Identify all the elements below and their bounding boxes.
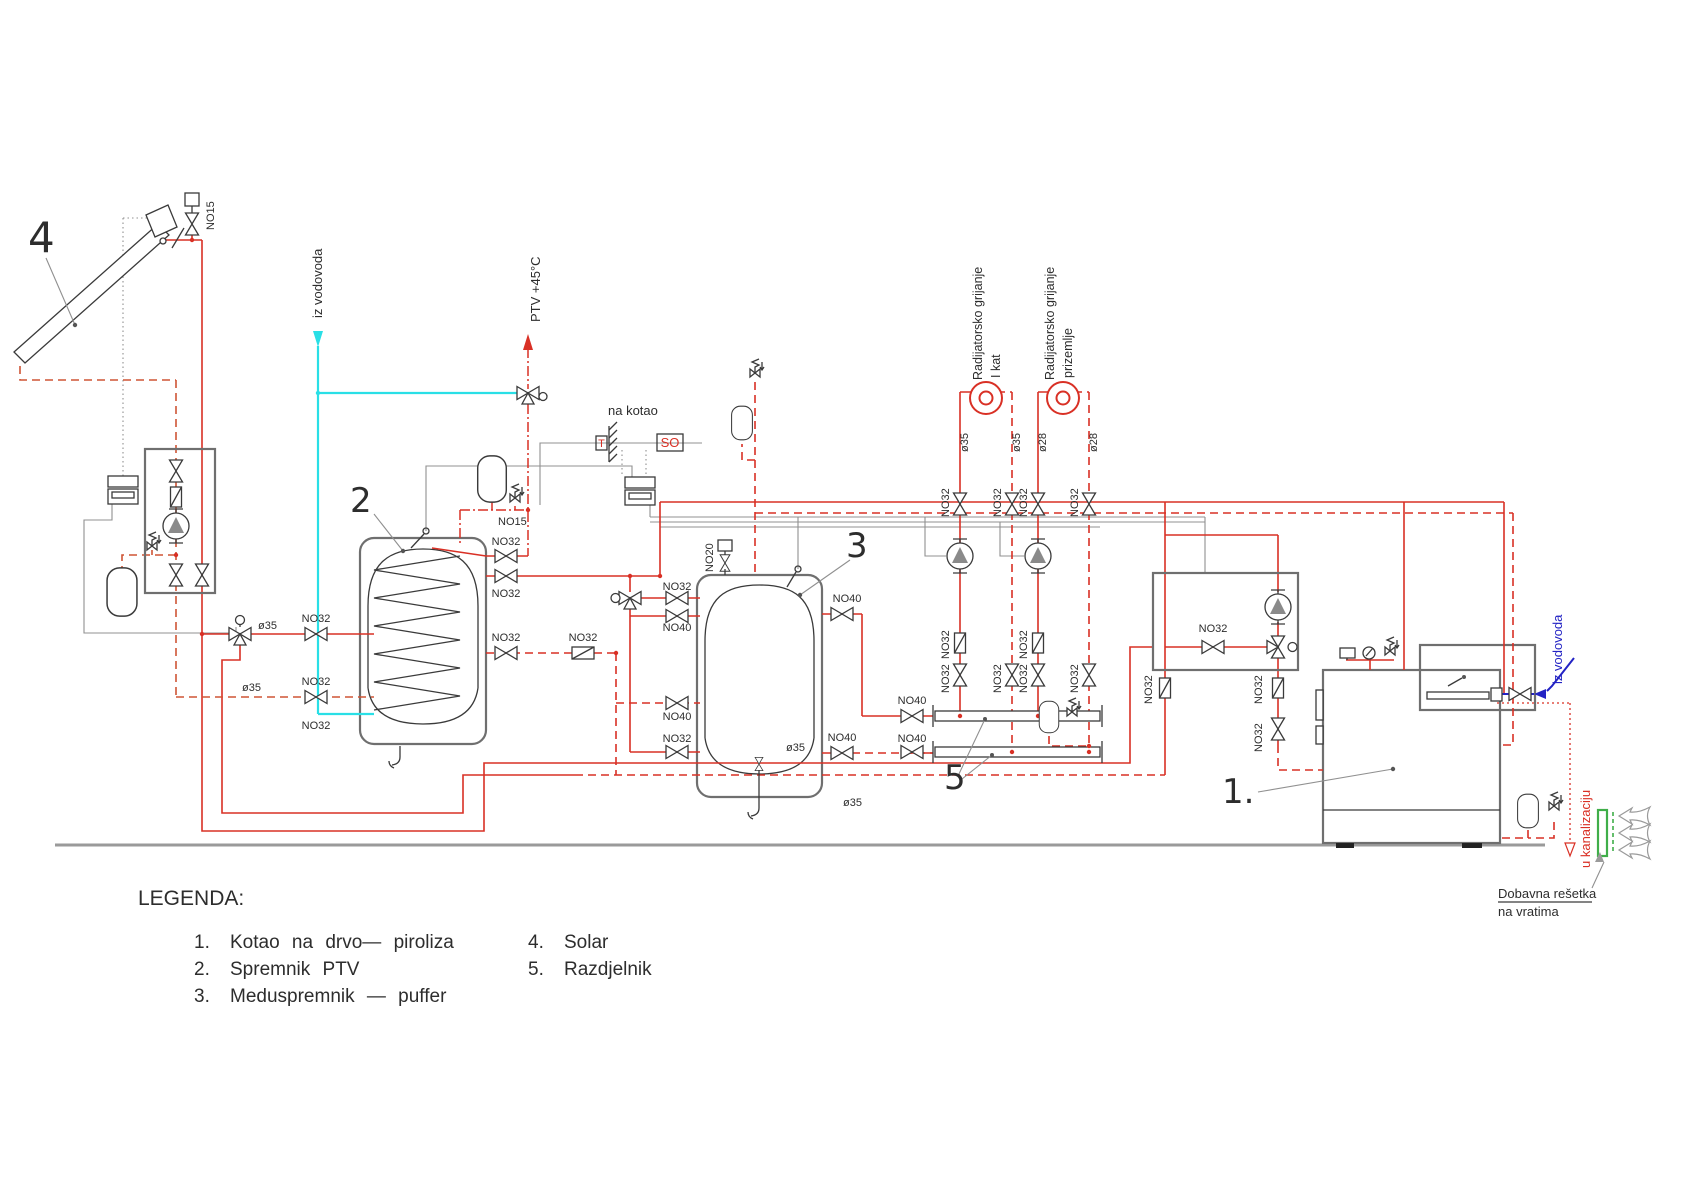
pipe-size-label: NO32 (940, 488, 952, 517)
valve-icon (170, 564, 183, 586)
pipe-size-label: NO32 (302, 720, 331, 732)
pipe-solar-dashed (20, 366, 374, 697)
valve-icon (196, 564, 209, 586)
expansion-vessel-icon (1039, 701, 1059, 733)
legend-item-label: Kotao na drvo— piroliza (230, 932, 454, 953)
valve-icon (495, 570, 517, 583)
door-grille-label-1: Dobavna rešetka (1498, 886, 1597, 901)
tank-spremnik-ptv (360, 538, 486, 744)
check-valve-icon (572, 647, 594, 659)
legend-item-number: 4. (528, 932, 544, 953)
to-sewer-arrow-icon (1565, 843, 1575, 856)
valve-icon (720, 555, 730, 572)
check-valve-icon (1160, 678, 1171, 698)
check-valve-icon (1033, 633, 1044, 653)
valve-icon (1083, 493, 1096, 515)
pipe-size-label: ø28 (1037, 433, 1049, 452)
dhw-mixing-valve (517, 387, 547, 405)
pipe-size-label: NO32 (663, 733, 692, 745)
expansion-vessel-icon (107, 568, 137, 616)
legend-item-number: 3. (194, 986, 210, 1007)
solar-number: 4 (28, 213, 55, 262)
radiator-kat-label-2: I kat (989, 354, 1003, 378)
valve-icon (666, 746, 688, 759)
pipe-size-label: NO32 (302, 613, 331, 625)
safety-valve-icon (1385, 637, 1399, 655)
solar-mixing-valve (229, 616, 251, 646)
pipe-size-label: NO32 (1199, 623, 1228, 635)
valve-icon (954, 664, 967, 686)
pipe-size-label: NO32 (992, 664, 1004, 693)
pipe-size-label: NO20 (704, 543, 716, 572)
pipe-size-label: NO32 (992, 488, 1004, 517)
valve-icon (1509, 688, 1531, 701)
mains-water-label: iz vodovoda (1550, 614, 1565, 684)
valve-icon (666, 610, 688, 623)
check-valve-icon (1273, 678, 1284, 698)
valve-icon (666, 697, 688, 710)
safety-valve-icon (750, 359, 764, 377)
valve-icon (305, 691, 327, 704)
pipe-size-label: NO32 (569, 632, 598, 644)
to-sewer-label: u kanalizaciju (1578, 790, 1593, 868)
legend: LEGENDA: 1. Kotao na drvo— piroliza 2. S… (138, 887, 652, 1007)
valve-icon (186, 213, 199, 235)
drain-icon (748, 797, 759, 819)
pipe-size-label: NO40 (828, 732, 857, 744)
door-grille-label-2: na vratima (1498, 904, 1559, 919)
t-sensor-label: T (598, 438, 605, 450)
legend-item-label: Spremnik PTV (230, 959, 360, 980)
pipe-size-label: NO40 (898, 695, 927, 707)
airflow-arrow-icon (1619, 807, 1650, 825)
return-manifold (935, 747, 1100, 757)
na-kotao-label: na kotao (608, 403, 658, 418)
pipe-size-label: NO32 (1069, 664, 1081, 693)
legend-item-label: Meduspremnik — puffer (230, 986, 447, 1007)
pipe-size-label: NO32 (940, 664, 952, 693)
pipe-size-label: NO40 (663, 622, 692, 634)
legend-item-label: Solar (564, 932, 609, 953)
safety-valve-icon (1549, 792, 1563, 810)
air-vent-icon (718, 540, 732, 551)
valve-icon (1006, 493, 1019, 515)
control-wires (84, 218, 1205, 633)
boiler-pump-icon (1265, 590, 1291, 624)
solar-controller (108, 476, 138, 504)
pipe-size-label: NO32 (1253, 675, 1265, 704)
pipe-size-label: NO15 (498, 516, 527, 528)
so-label: SO (661, 435, 680, 450)
pipe-size-label: ø28 (1088, 433, 1100, 452)
solar-pump-station (107, 449, 215, 616)
pipe-size-label: NO32 (1018, 488, 1030, 517)
legend-item-number: 5. (528, 959, 544, 980)
cooling-coil (1427, 692, 1489, 699)
legend-item-number: 1. (194, 932, 210, 953)
valve-icon (831, 608, 853, 621)
solar-pump-icon (163, 509, 189, 543)
pipe-size-label: NO15 (205, 201, 217, 230)
valve-icon (305, 628, 327, 641)
pipe-size-label: NO32 (1069, 488, 1081, 517)
safety-valve-icon (147, 532, 161, 550)
valve-icon (831, 747, 853, 760)
pipe-size-label: NO32 (492, 588, 521, 600)
heating-scheme-canvas: 4 2 3 1. 5 NO15 iz vodovoda PTV +45°C na… (0, 0, 1684, 1190)
check-valve-icon (171, 487, 182, 507)
valve-icon (1202, 641, 1224, 654)
airflow-arrow-icon (1619, 824, 1650, 842)
airflow-arrow-icon (1619, 841, 1650, 859)
room-wall-outline (540, 443, 702, 505)
radiator-kat-label-1: Radijatorsko grijanje (971, 267, 985, 380)
pipe-size-label: NO32 (1253, 723, 1265, 752)
valve-icon (1083, 664, 1096, 686)
diagram-svg: 4 2 3 1. 5 NO15 iz vodovoda PTV +45°C na… (0, 0, 1684, 1190)
radiator-prizemlje-label-1: Radijatorsko grijanje (1043, 267, 1057, 380)
valve-icon (1032, 664, 1045, 686)
safety-valve-icon (510, 484, 524, 502)
pipe-size-label: ø35 (258, 620, 277, 632)
legend-heading: LEGENDA: (138, 887, 244, 910)
pipe-size-label: ø35 (959, 433, 971, 452)
mixing-valve-knob-icon (1288, 643, 1297, 652)
pipe-size-label: NO32 (1018, 630, 1030, 659)
pipe-size-label: ø35 (843, 797, 862, 809)
expansion-vessel-icon (732, 406, 753, 440)
expansion-vessel-icon (1518, 794, 1539, 828)
valve-icon (495, 647, 517, 660)
expansion-vessel-icon (478, 456, 507, 502)
pipe-size-label: NO40 (663, 711, 692, 723)
pipe-size-label: ø35 (1011, 433, 1023, 452)
pipe-size-label: NO32 (1143, 675, 1155, 704)
door-grille (1595, 807, 1650, 862)
radiator-prizemlje-label-2: prizemlje (1061, 328, 1075, 378)
cold-water-source-label: iz vodovoda (310, 248, 325, 318)
pipe-size-label: NO32 (492, 536, 521, 548)
radiator-circuit-icon (1047, 382, 1079, 414)
pipe-size-label: NO32 (940, 630, 952, 659)
valve-icon (1272, 718, 1285, 740)
ptv-out-label: PTV +45°C (528, 256, 543, 322)
valve-icon (954, 493, 967, 515)
valve-icon (495, 550, 517, 563)
boiler-pump-group (1153, 573, 1298, 740)
tank2-number: 2 (350, 481, 372, 521)
pipe-size-label: ø35 (242, 682, 261, 694)
razdjelnik-number: 5 (944, 758, 966, 798)
pipe-size-label: NO40 (898, 733, 927, 745)
air-vent-icon (185, 193, 199, 206)
legend-item-label: Razdjelnik (564, 959, 652, 980)
boiler-controller (625, 477, 655, 505)
thermostat-icon (1340, 648, 1355, 658)
valve-icon (666, 592, 688, 605)
ptv-arrow-icon (523, 334, 533, 350)
tank3-number: 3 (846, 526, 868, 566)
valve-icon (901, 746, 923, 759)
valve-icon (170, 460, 183, 482)
check-valve-icon (955, 633, 966, 653)
loading-mixing-valve (611, 592, 641, 610)
pipe-size-label: ø35 (786, 742, 805, 754)
pipe-size-label: NO32 (302, 676, 331, 688)
pipe-size-label: NO32 (1018, 664, 1030, 693)
boiler-number: 1. (1222, 772, 1254, 812)
pipe-size-label: NO40 (833, 593, 862, 605)
radiator-circuit-icon (970, 382, 1002, 414)
drain-icon (389, 746, 400, 768)
pipe-size-label: NO32 (492, 632, 521, 644)
valve-icon (1032, 493, 1045, 515)
cold-water-arrow-icon (313, 331, 323, 347)
valve-icon (1006, 664, 1019, 686)
circulation-pump-icon (1025, 539, 1051, 573)
pipe-size-label: NO32 (663, 581, 692, 593)
valve-icon (901, 710, 923, 723)
circulation-pump-icon (947, 539, 973, 573)
legend-item-number: 2. (194, 959, 210, 980)
